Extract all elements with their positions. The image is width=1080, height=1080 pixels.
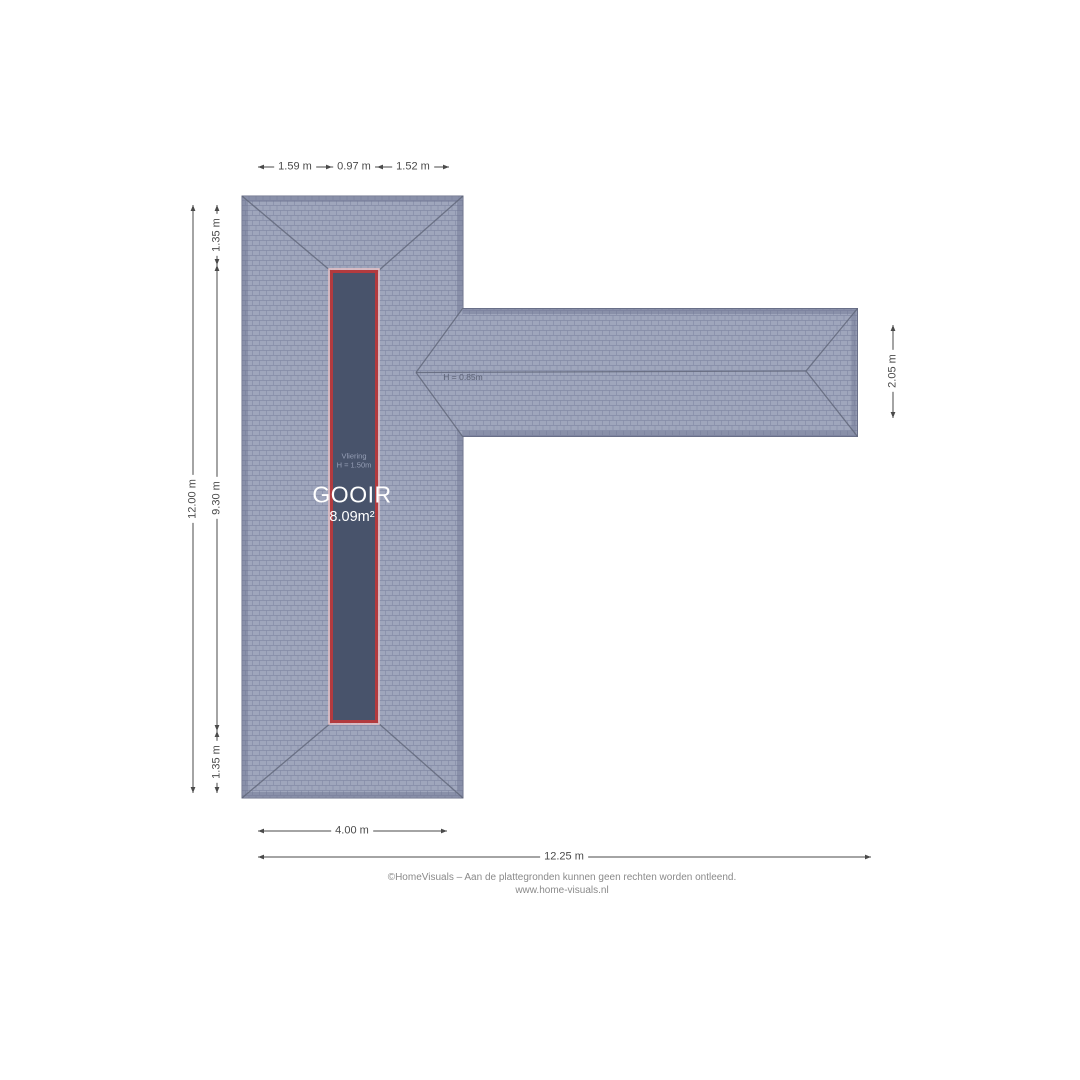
wing-height-annotation: H = 0.85m (443, 372, 482, 382)
footer-disclaimer: ©HomeVisuals – Aan de plattegronden kunn… (22, 872, 1080, 885)
dim-label-left-inner-1: 1.35 m (211, 214, 224, 256)
loft-height-label: H = 1.50m (337, 461, 372, 470)
dim-label-left-inner-2: 9.30 m (211, 477, 224, 519)
dim-label-left-outer: 12.00 m (187, 475, 200, 523)
floorplan-page: 1.59 m 0.97 m 1.52 m 12.00 m 1.35 m 9.30… (0, 0, 1080, 1080)
dim-label-bottom-wing: 4.00 m (331, 825, 373, 838)
footer: ©HomeVisuals – Aan de plattegronden kunn… (22, 872, 1080, 897)
dim-label-top-2: 0.97 m (333, 161, 375, 174)
roof-plan-canvas (0, 0, 1080, 1080)
dim-label-top-3: 1.52 m (392, 161, 434, 174)
loft-label: Vliering (341, 452, 366, 461)
room-name: GOOIR (312, 482, 391, 509)
footer-url: www.home-visuals.nl (22, 885, 1080, 898)
dim-label-top-1: 1.59 m (274, 161, 316, 174)
room-area: 8.09m² (329, 509, 374, 525)
dim-label-left-inner-3: 1.35 m (211, 741, 224, 783)
dim-label-bottom-total: 12.25 m (540, 851, 588, 864)
dim-label-right: 2.05 m (887, 350, 900, 392)
